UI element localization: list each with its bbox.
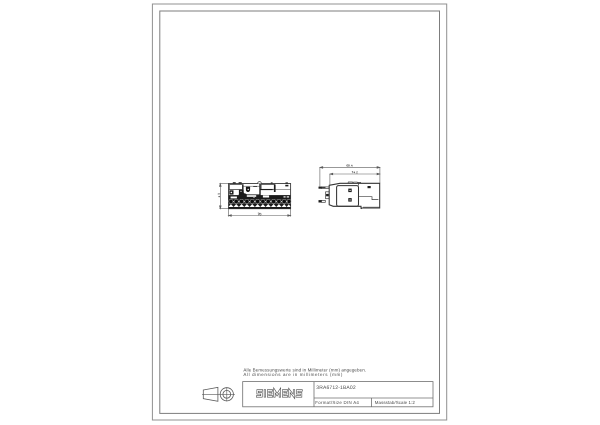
svg-text:Format/Size DIN A4: Format/Size DIN A4 <box>315 400 359 405</box>
svg-text:Massstab/Scale 1:2: Massstab/Scale 1:2 <box>375 400 416 405</box>
svg-text:3RA6712-1BA02: 3RA6712-1BA02 <box>316 385 356 391</box>
svg-text:All dimensions are in millimet: All dimensions are in millimeters (mm) <box>243 372 343 377</box>
